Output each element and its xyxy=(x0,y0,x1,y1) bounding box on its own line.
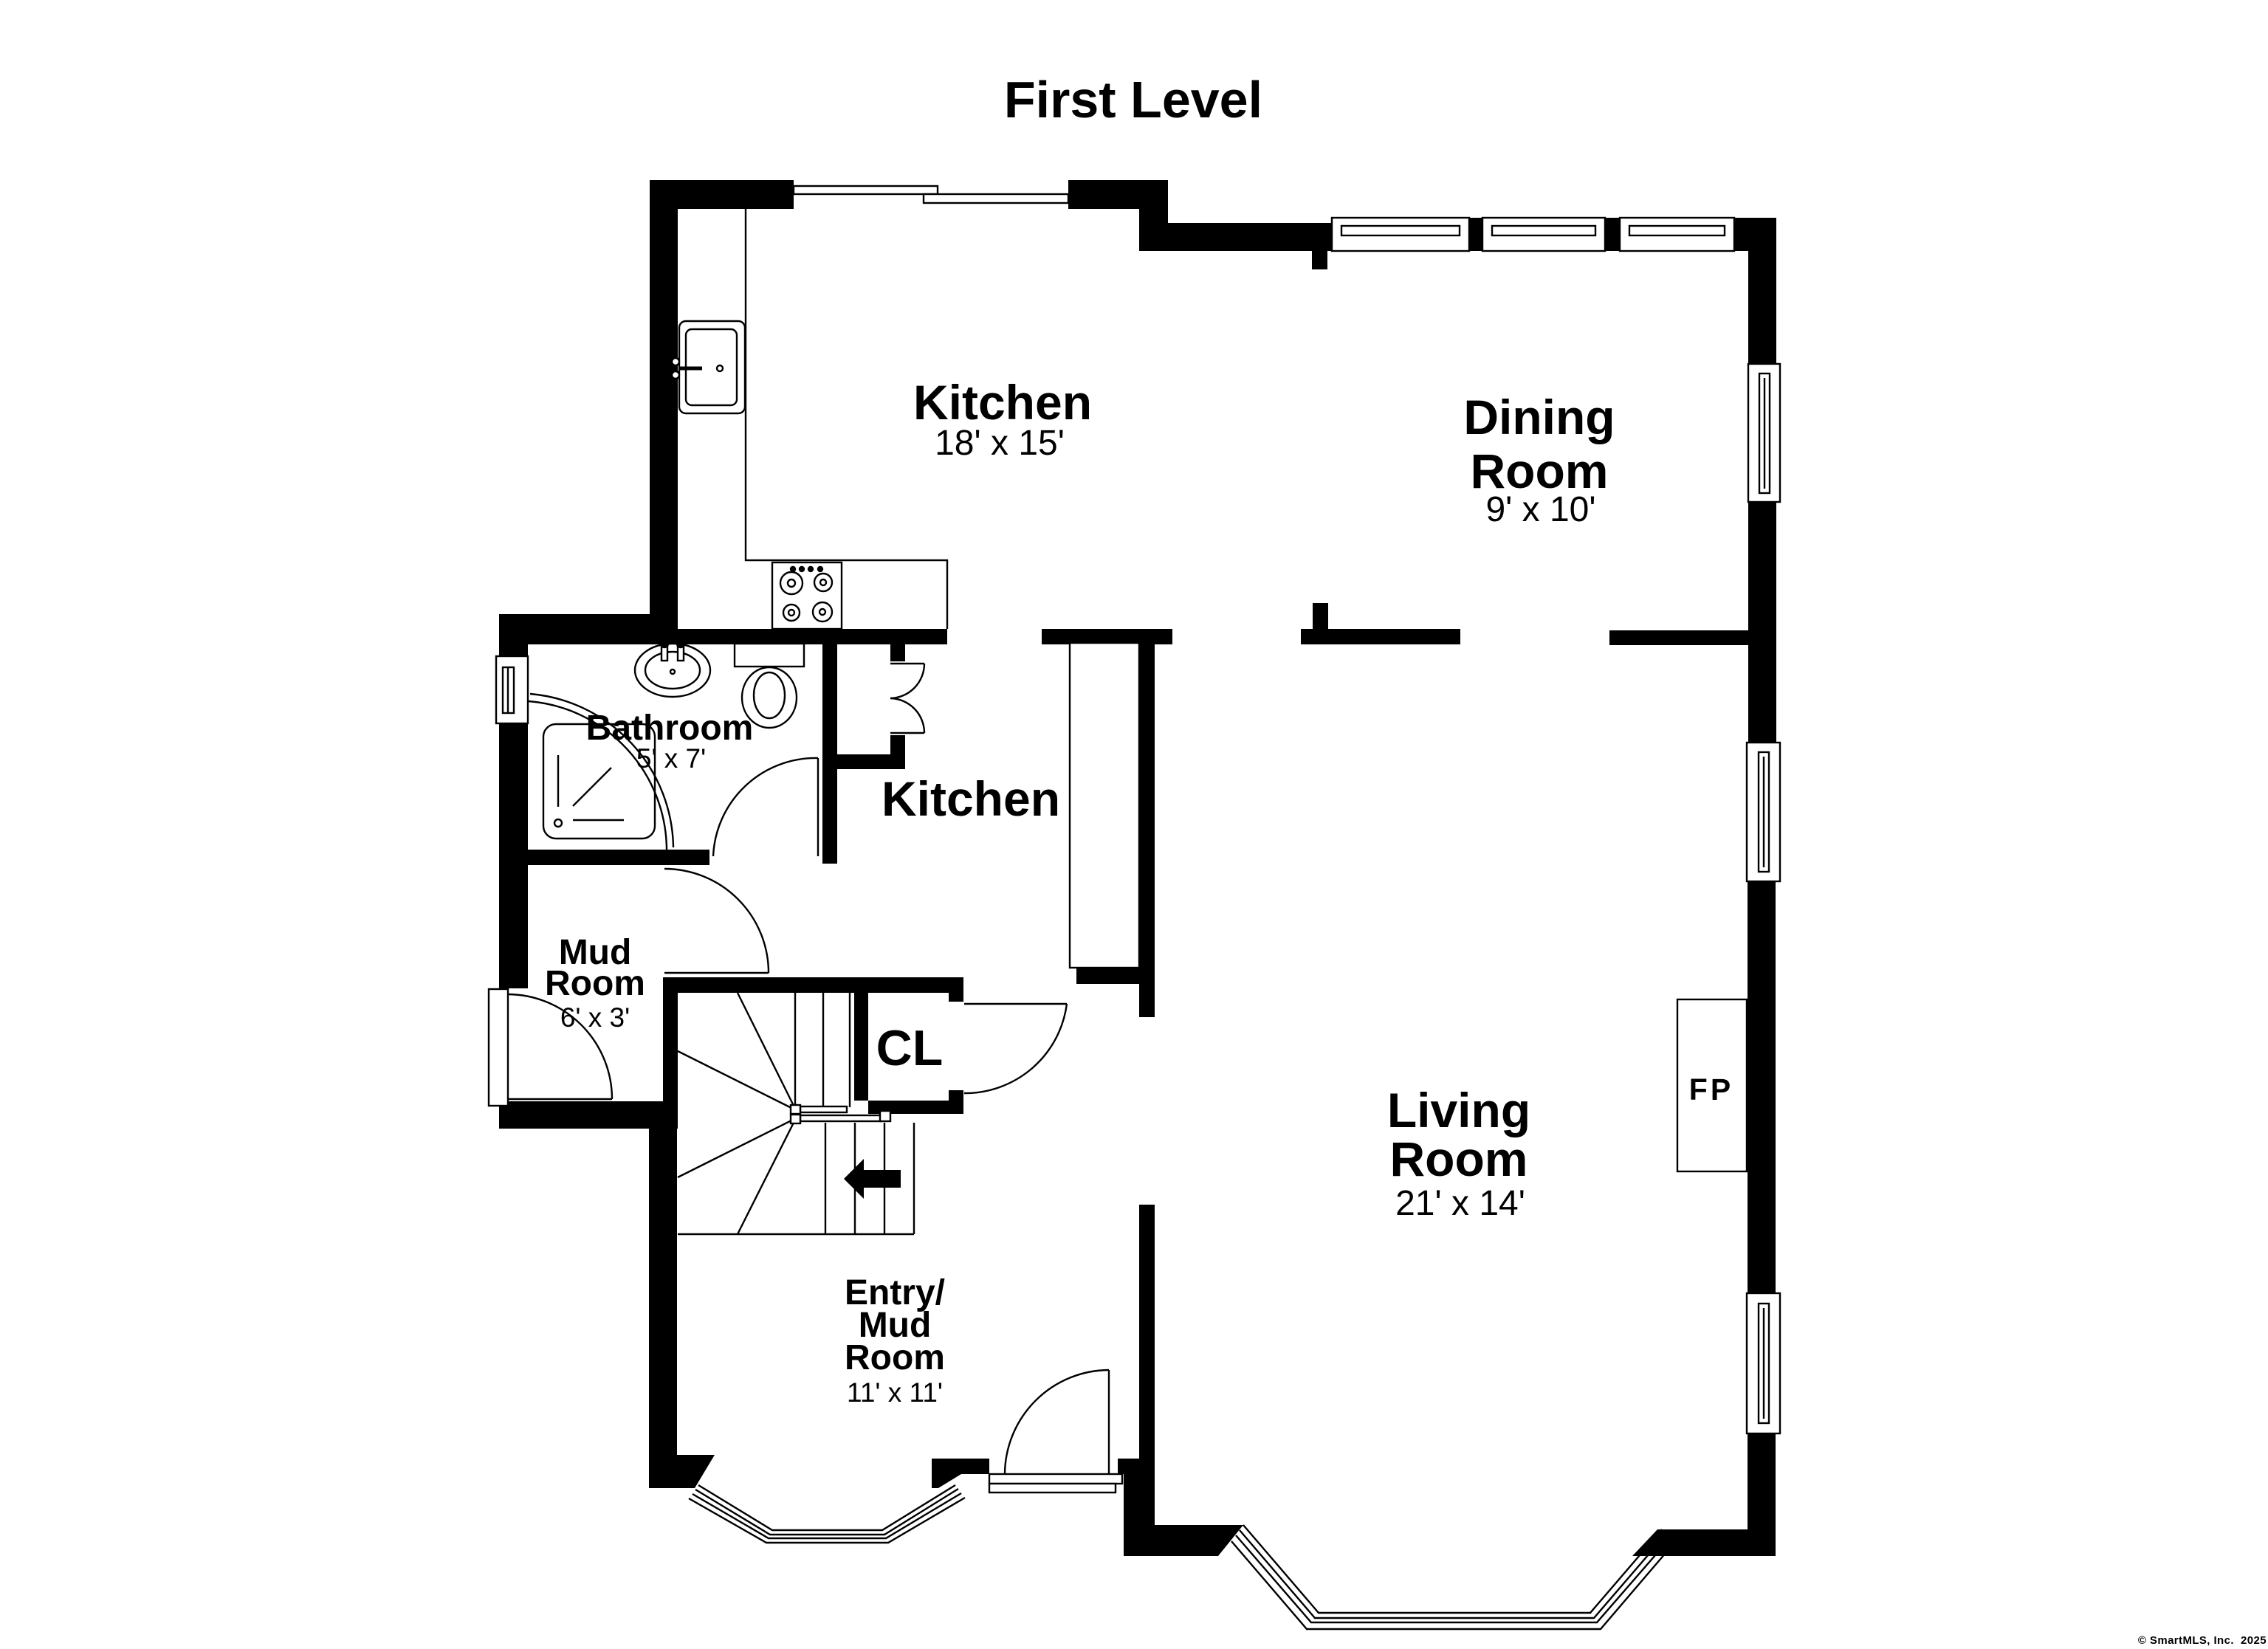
svg-text:Room: Room xyxy=(1390,1132,1528,1186)
svg-text:9' x 10': 9' x 10' xyxy=(1485,490,1595,529)
svg-text:Kitchen: Kitchen xyxy=(913,375,1092,430)
svg-text:Kitchen: Kitchen xyxy=(882,771,1060,826)
svg-text:5' x 7': 5' x 7' xyxy=(636,743,706,774)
svg-text:6' x 3': 6' x 3' xyxy=(560,1002,630,1033)
svg-text:11' x 11': 11' x 11' xyxy=(847,1377,943,1408)
svg-text:FP: FP xyxy=(1689,1073,1733,1106)
svg-text:Room: Room xyxy=(545,964,645,1003)
svg-text:© SmartMLS, Inc. 2025: © SmartMLS, Inc. 2025 xyxy=(2138,1634,2267,1647)
svg-text:Bathroom: Bathroom xyxy=(586,709,754,748)
svg-text:CL: CL xyxy=(876,1020,944,1076)
svg-text:Room: Room xyxy=(845,1338,945,1377)
svg-text:Living: Living xyxy=(1387,1083,1530,1137)
svg-text:18' x 15': 18' x 15' xyxy=(935,424,1065,463)
svg-text:Dining: Dining xyxy=(1463,390,1615,444)
svg-text:21' x 14': 21' x 14' xyxy=(1395,1184,1525,1223)
svg-text:First Level: First Level xyxy=(1004,71,1262,128)
